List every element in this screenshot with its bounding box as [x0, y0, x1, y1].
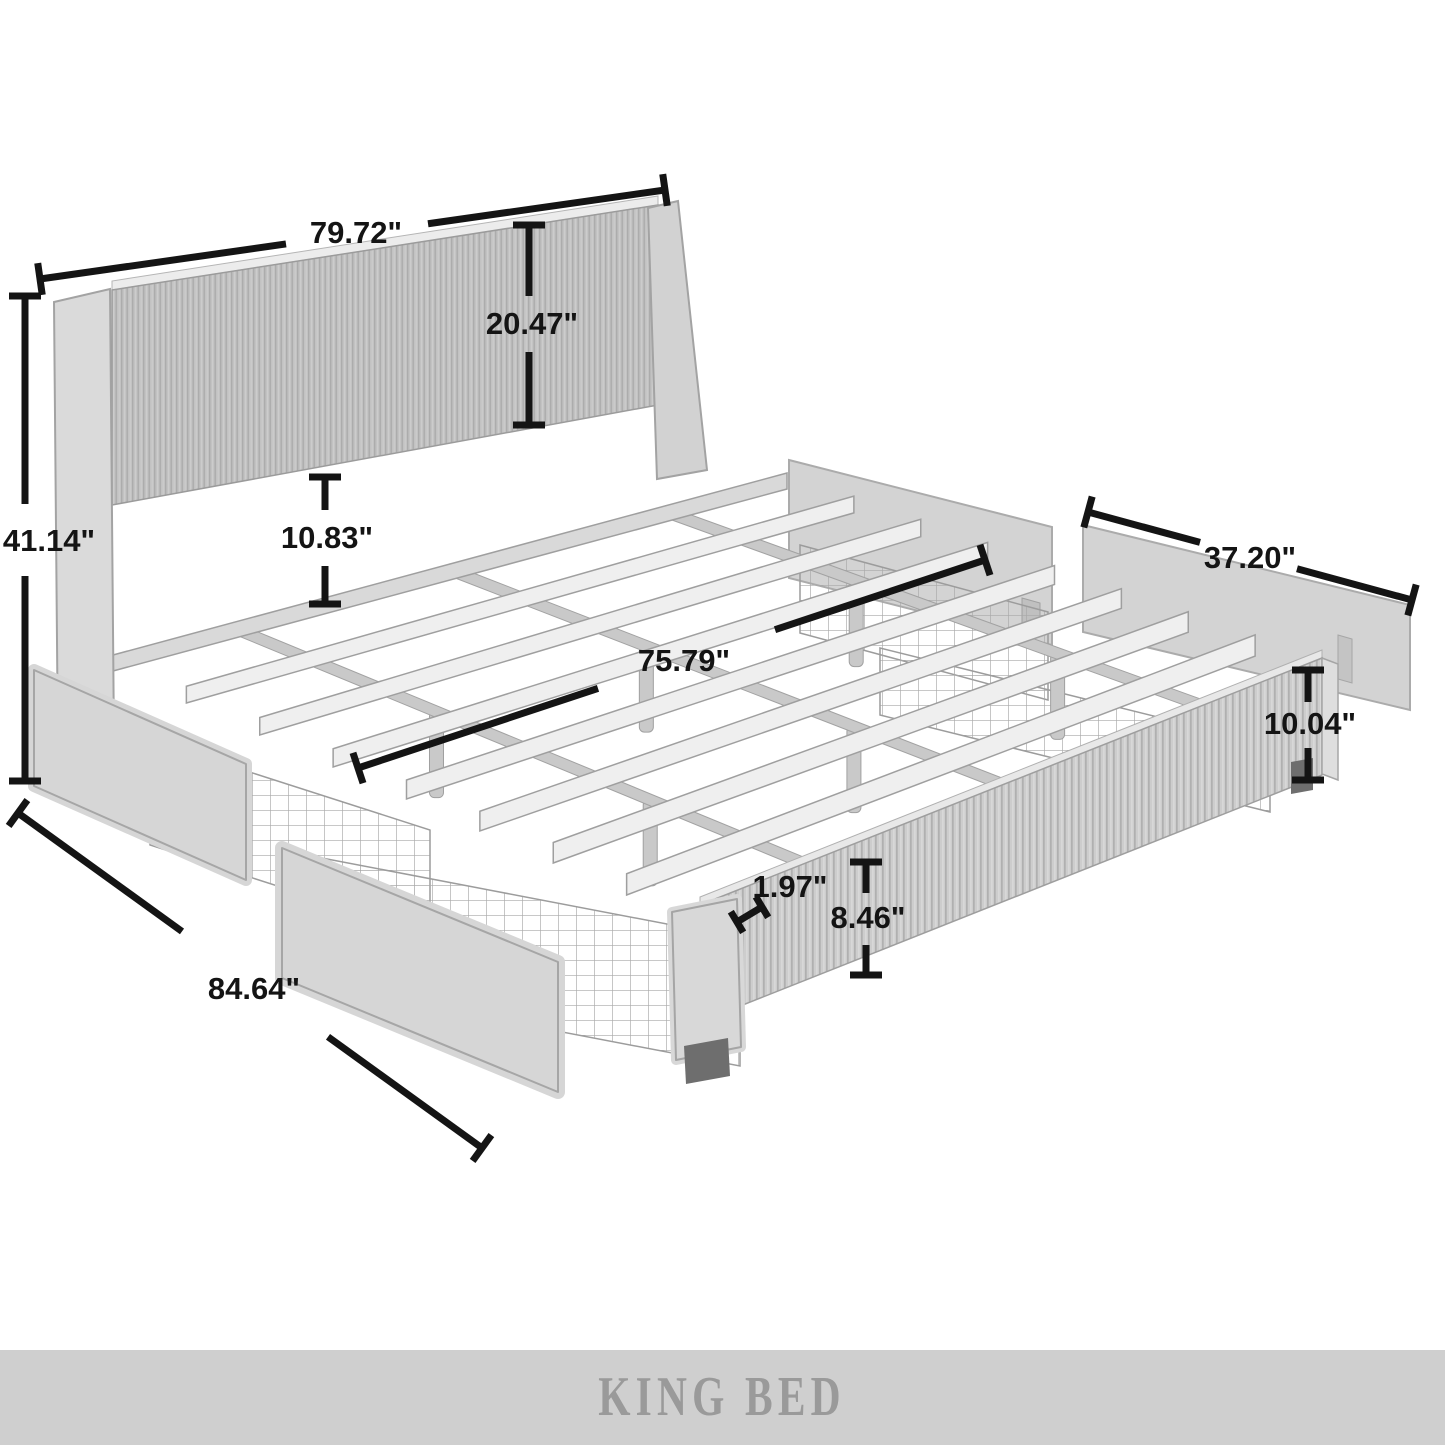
dimension-label-side-drawer-end-height: 10.04": [1264, 706, 1356, 741]
dimension-label-side-panel-width: 37.20": [1204, 540, 1296, 575]
dimension-label-overall-length: 84.64": [208, 971, 300, 1006]
dimension-label-overall-height: 41.14": [3, 523, 95, 558]
headboard-fluted-panel: [112, 205, 658, 505]
dimension-end-cap: [1084, 497, 1092, 528]
dimension-end-cap: [9, 800, 28, 826]
headboard-right-post: [648, 201, 707, 479]
panel-bracket: [1338, 635, 1352, 683]
dimension-end-cap: [473, 1135, 492, 1161]
dimension-end-cap: [663, 174, 668, 206]
drawer-corner-post: [672, 899, 741, 1060]
dimension-label-headboard-to-slats-gap: 10.83": [281, 520, 373, 555]
dimension-label-headboard-width: 79.72": [310, 215, 402, 250]
dimension-end-cap: [1408, 585, 1416, 616]
dimension-label-headboard-panel-height: 20.47": [486, 306, 578, 341]
product-dimension-diagram: 79.72"20.47"41.14"10.83"37.20"75.79"10.0…: [0, 0, 1445, 1445]
dimension-headboard-to-slats-gap: 10.83": [281, 477, 373, 604]
banner-title: KING BED: [598, 1365, 845, 1428]
dimension-label-slat-length: 75.79": [638, 643, 730, 678]
dimension-end-cap: [38, 263, 43, 295]
drawer-corner-leg: [684, 1038, 730, 1084]
bed-dimension-diagram: 79.72"20.47"41.14"10.83"37.20"75.79"10.0…: [0, 0, 1445, 1445]
title-banner: KING BED: [0, 1350, 1445, 1445]
dimension-label-drawer-front-height: 8.46": [830, 900, 905, 935]
dimension-label-slat-thickness: 1.97": [752, 869, 827, 904]
